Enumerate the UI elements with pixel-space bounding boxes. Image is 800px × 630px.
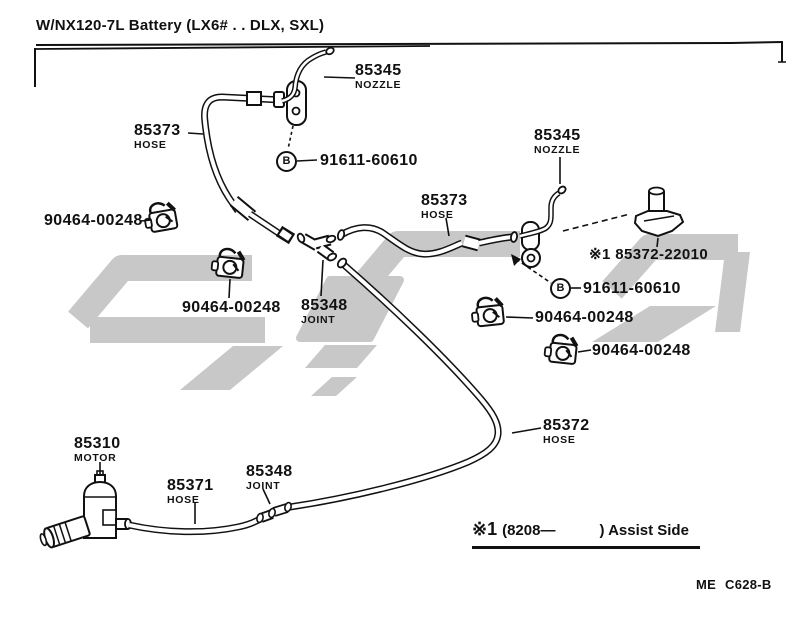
part-number: 85372 xyxy=(543,418,590,434)
part-number: 90464-00248 xyxy=(535,310,634,326)
label-hose-rear: 85372 HOSE xyxy=(543,418,590,446)
catalog-page: W/NX120-7L Battery (LX6# . . DLX, SXL) xyxy=(0,0,800,630)
figure-code: ME C628-B xyxy=(696,577,772,592)
label-hose-front: 85371 HOSE xyxy=(167,478,214,506)
front-joint xyxy=(256,502,292,523)
label-clamp-right-upper: 90464-00248 xyxy=(535,310,634,326)
label-joint-front: 85348 JOINT xyxy=(246,464,293,492)
part-name: HOSE xyxy=(421,210,468,221)
label-nozzle-right: 85345 NOZZLE xyxy=(534,128,581,156)
footnote-assist-side: ※1 (8208— ) Assist Side xyxy=(472,519,700,549)
label-nozzle-top: 85345 NOZZLE xyxy=(355,63,402,91)
bolt-marker-b-right: B xyxy=(550,278,571,299)
washer-motor xyxy=(38,471,131,550)
frame-lines xyxy=(35,42,786,87)
part-number: 85348 xyxy=(301,298,348,314)
label-motor: 85310 MOTOR xyxy=(74,436,121,464)
part-number: 91611-60610 xyxy=(583,281,681,297)
watermark xyxy=(78,244,750,396)
part-number: ※1 85372-22010 xyxy=(589,247,708,262)
part-name: MOTOR xyxy=(74,453,121,464)
part-name: JOINT xyxy=(301,315,348,326)
part-number: 85371 xyxy=(167,478,214,494)
part-name: HOSE xyxy=(543,435,590,446)
footnote-applicability: (8208— xyxy=(502,522,555,539)
label-clamp-far-left: 90464-00248 xyxy=(44,213,143,229)
part-name: NOZZLE xyxy=(355,80,402,91)
bolt-marker-b-upper: B xyxy=(276,151,297,172)
part-name: JOINT xyxy=(246,481,293,492)
part-number: 85310 xyxy=(74,436,121,452)
part-number: 91611-60610 xyxy=(320,153,418,169)
part-name: NOZZLE xyxy=(534,145,581,156)
label-hose-middle: 85373 HOSE xyxy=(421,193,468,221)
part-name: HOSE xyxy=(134,140,181,151)
label-screw-right: 91611-60610 xyxy=(583,281,681,297)
label-hose-upper-left: 85373 HOSE xyxy=(134,123,181,151)
footnote-ref: ※1 xyxy=(472,519,497,540)
label-screw-upper: 91611-60610 xyxy=(320,153,418,169)
label-clamp-right-lower: 90464-00248 xyxy=(592,343,691,359)
footnote-closing: ) Assist Side xyxy=(599,522,688,539)
part-number: 85345 xyxy=(355,63,402,79)
part-number: 90464-00248 xyxy=(44,213,143,229)
part-number: 90464-00248 xyxy=(592,343,691,359)
label-joint-middle: 85348 JOINT xyxy=(301,298,348,326)
part-number: 85373 xyxy=(421,193,468,209)
part-number: 90464-00248 xyxy=(182,300,281,316)
part-number: 85348 xyxy=(246,464,293,480)
part-number: 85373 xyxy=(134,123,181,139)
part-name: HOSE xyxy=(167,495,214,506)
part-number: 85345 xyxy=(534,128,581,144)
label-clamp-mid-left: 90464-00248 xyxy=(182,300,281,316)
label-nozzle-assist: ※1 85372-22010 xyxy=(589,247,708,262)
assist-nozzle-part xyxy=(635,188,683,237)
